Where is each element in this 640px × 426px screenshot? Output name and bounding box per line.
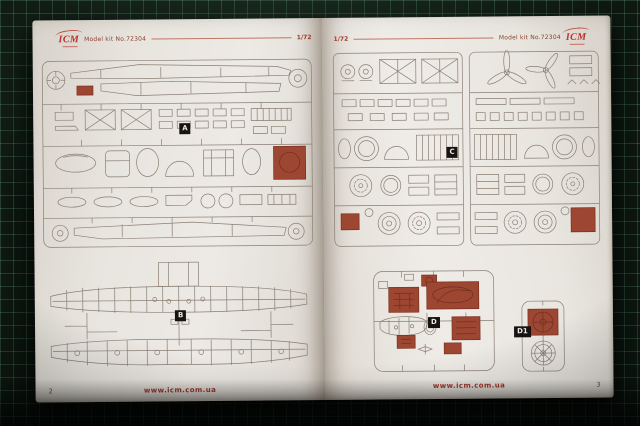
sprue-label-c: C <box>446 147 457 158</box>
kit-number-label: Model kit No.72304 <box>84 35 146 43</box>
right-page-header: 1/72 Model kit No.72304 ICM <box>333 31 586 45</box>
sprue-label-b: B <box>175 310 186 321</box>
sprue-label-a: A <box>179 123 191 134</box>
website-footer: www.icm.com.ua <box>36 385 325 396</box>
sprue-c-diagram <box>332 50 602 248</box>
scale-label: 1/72 <box>333 35 348 42</box>
photo-of-instruction-booklet-on-cutting-mat: ICM Model kit No.72304 1/72 <box>0 0 640 426</box>
page-left: ICM Model kit No.72304 1/72 <box>32 18 324 403</box>
icm-logo: ICM <box>58 33 79 45</box>
sprue-label-d: D <box>428 317 440 328</box>
instruction-booklet: ICM Model kit No.72304 1/72 <box>32 15 613 402</box>
left-page-header: ICM Model kit No.72304 1/72 <box>58 31 311 45</box>
scale-label: 1/72 <box>297 34 312 41</box>
kit-number-label: Model kit No.72304 <box>499 33 561 41</box>
sprue-a-diagram <box>41 50 315 252</box>
icm-logo: ICM <box>566 31 587 43</box>
website-footer: www.icm.com.ua <box>325 380 614 391</box>
header-rule <box>353 38 494 40</box>
sprue-label-d1: D1 <box>514 326 531 337</box>
page-right: 1/72 Model kit No.72304 ICM <box>321 15 613 400</box>
header-rule <box>151 37 292 39</box>
